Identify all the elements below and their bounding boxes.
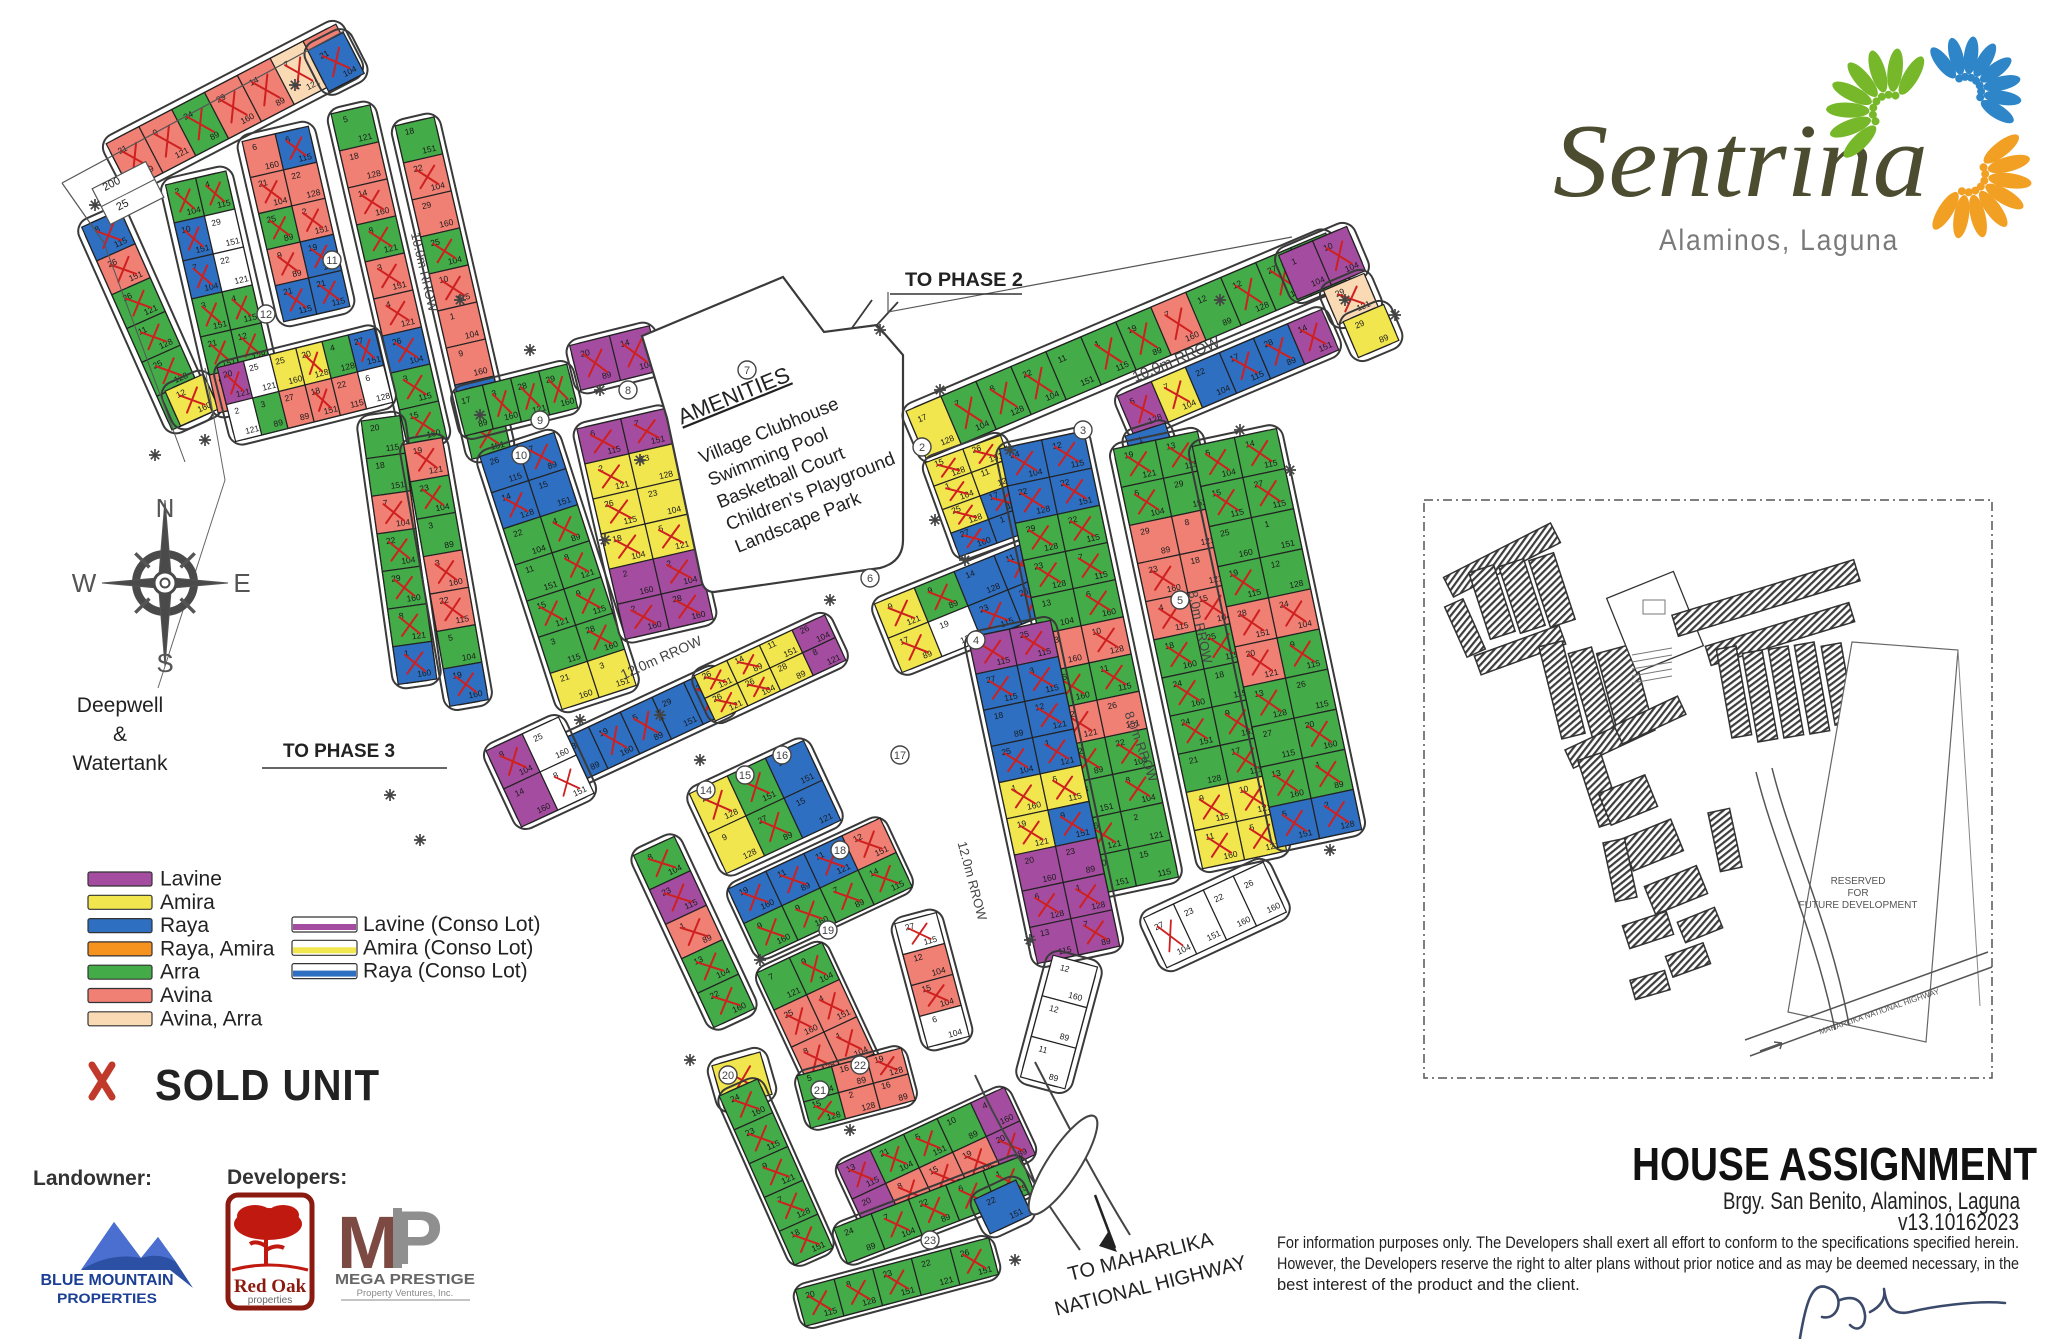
svg-text:Developers:: Developers: (227, 1166, 347, 1189)
svg-text:Arra: Arra (160, 961, 200, 984)
svg-text:4: 4 (973, 635, 979, 647)
svg-text:Avina: Avina (160, 984, 212, 1007)
svg-text:20: 20 (722, 1070, 734, 1082)
svg-text:6: 6 (867, 573, 873, 585)
svg-text:HOUSE ASSIGNMENT: HOUSE ASSIGNMENT (1632, 1138, 2037, 1190)
svg-text:Amira (Conso Lot): Amira (Conso Lot) (363, 936, 533, 959)
svg-text:Alaminos, Laguna: Alaminos, Laguna (1659, 224, 1899, 257)
svg-text:TO PHASE 3: TO PHASE 3 (283, 740, 395, 762)
svg-text:160: 160 (406, 592, 422, 604)
svg-text:104: 104 (395, 517, 411, 529)
svg-text:Red Oak: Red Oak (234, 1276, 307, 1297)
svg-text:151: 151 (390, 479, 406, 491)
svg-text:20: 20 (369, 422, 380, 433)
svg-text:N: N (156, 493, 175, 523)
svg-text:22: 22 (854, 1060, 866, 1072)
svg-text:Amira: Amira (160, 891, 215, 914)
svg-text:18: 18 (375, 460, 386, 471)
svg-text:19: 19 (822, 925, 834, 937)
svg-text:18: 18 (834, 845, 846, 857)
svg-text:9: 9 (537, 415, 543, 427)
svg-text:Lavine (Conso Lot): Lavine (Conso Lot) (363, 913, 540, 936)
svg-text:11: 11 (326, 255, 337, 267)
svg-text:best interest of the product a: best interest of the product and the cli… (1277, 1276, 1580, 1294)
svg-text:SOLD UNIT: SOLD UNIT (155, 1061, 380, 1110)
svg-text:5: 5 (1177, 595, 1183, 607)
svg-text:2: 2 (919, 442, 925, 454)
svg-text:Raya: Raya (160, 914, 209, 937)
svg-text:Avina, Arra: Avina, Arra (160, 1007, 263, 1030)
svg-text:PROPERTIES: PROPERTIES (57, 1290, 157, 1306)
svg-text:16: 16 (776, 750, 788, 762)
svg-text:17: 17 (894, 750, 906, 762)
svg-text:8: 8 (625, 385, 631, 397)
svg-text:BLUE MOUNTAIN: BLUE MOUNTAIN (41, 1272, 174, 1289)
svg-text:115: 115 (385, 441, 400, 453)
svg-text:14: 14 (700, 785, 712, 797)
svg-text:Property Ventures, Inc.: Property Ventures, Inc. (357, 1288, 454, 1299)
svg-text:&: & (113, 723, 127, 746)
svg-text:89: 89 (444, 539, 455, 551)
svg-text:For information purposes only.: For information purposes only. The Devel… (1277, 1234, 2019, 1252)
svg-text:12: 12 (260, 309, 272, 321)
svg-text:15: 15 (739, 770, 751, 782)
svg-text:Lavine: Lavine (160, 868, 222, 891)
svg-text:v13.10162023: v13.10162023 (1898, 1209, 2019, 1236)
svg-text:Deepwell: Deepwell (77, 694, 163, 717)
svg-text:S: S (156, 648, 173, 678)
svg-text:160: 160 (416, 667, 432, 679)
svg-text:3: 3 (1080, 425, 1086, 437)
svg-text:TO PHASE 2: TO PHASE 2 (905, 269, 1023, 291)
svg-text:However, the Developers reserv: However, the Developers reserve the righ… (1277, 1255, 2019, 1273)
svg-text:23: 23 (924, 1235, 936, 1247)
svg-text:Landowner:: Landowner: (33, 1167, 152, 1190)
svg-text:properties: properties (248, 1295, 292, 1306)
svg-text:Sentrina: Sentrina (1553, 102, 1928, 219)
svg-text:FOR: FOR (1847, 888, 1868, 899)
svg-text:21: 21 (814, 1085, 826, 1097)
svg-text:104: 104 (401, 554, 417, 566)
svg-text:Raya, Amira: Raya, Amira (160, 937, 275, 960)
svg-text:W: W (72, 568, 97, 598)
svg-text:MEGA PRESTIGE: MEGA PRESTIGE (335, 1271, 475, 1288)
svg-text:121: 121 (411, 629, 427, 641)
svg-text:RESERVED: RESERVED (1831, 876, 1886, 887)
svg-text:10: 10 (515, 450, 527, 462)
svg-text:Watertank: Watertank (73, 752, 168, 775)
svg-text:Raya (Conso Lot): Raya (Conso Lot) (363, 960, 528, 983)
svg-text:E: E (233, 568, 250, 598)
